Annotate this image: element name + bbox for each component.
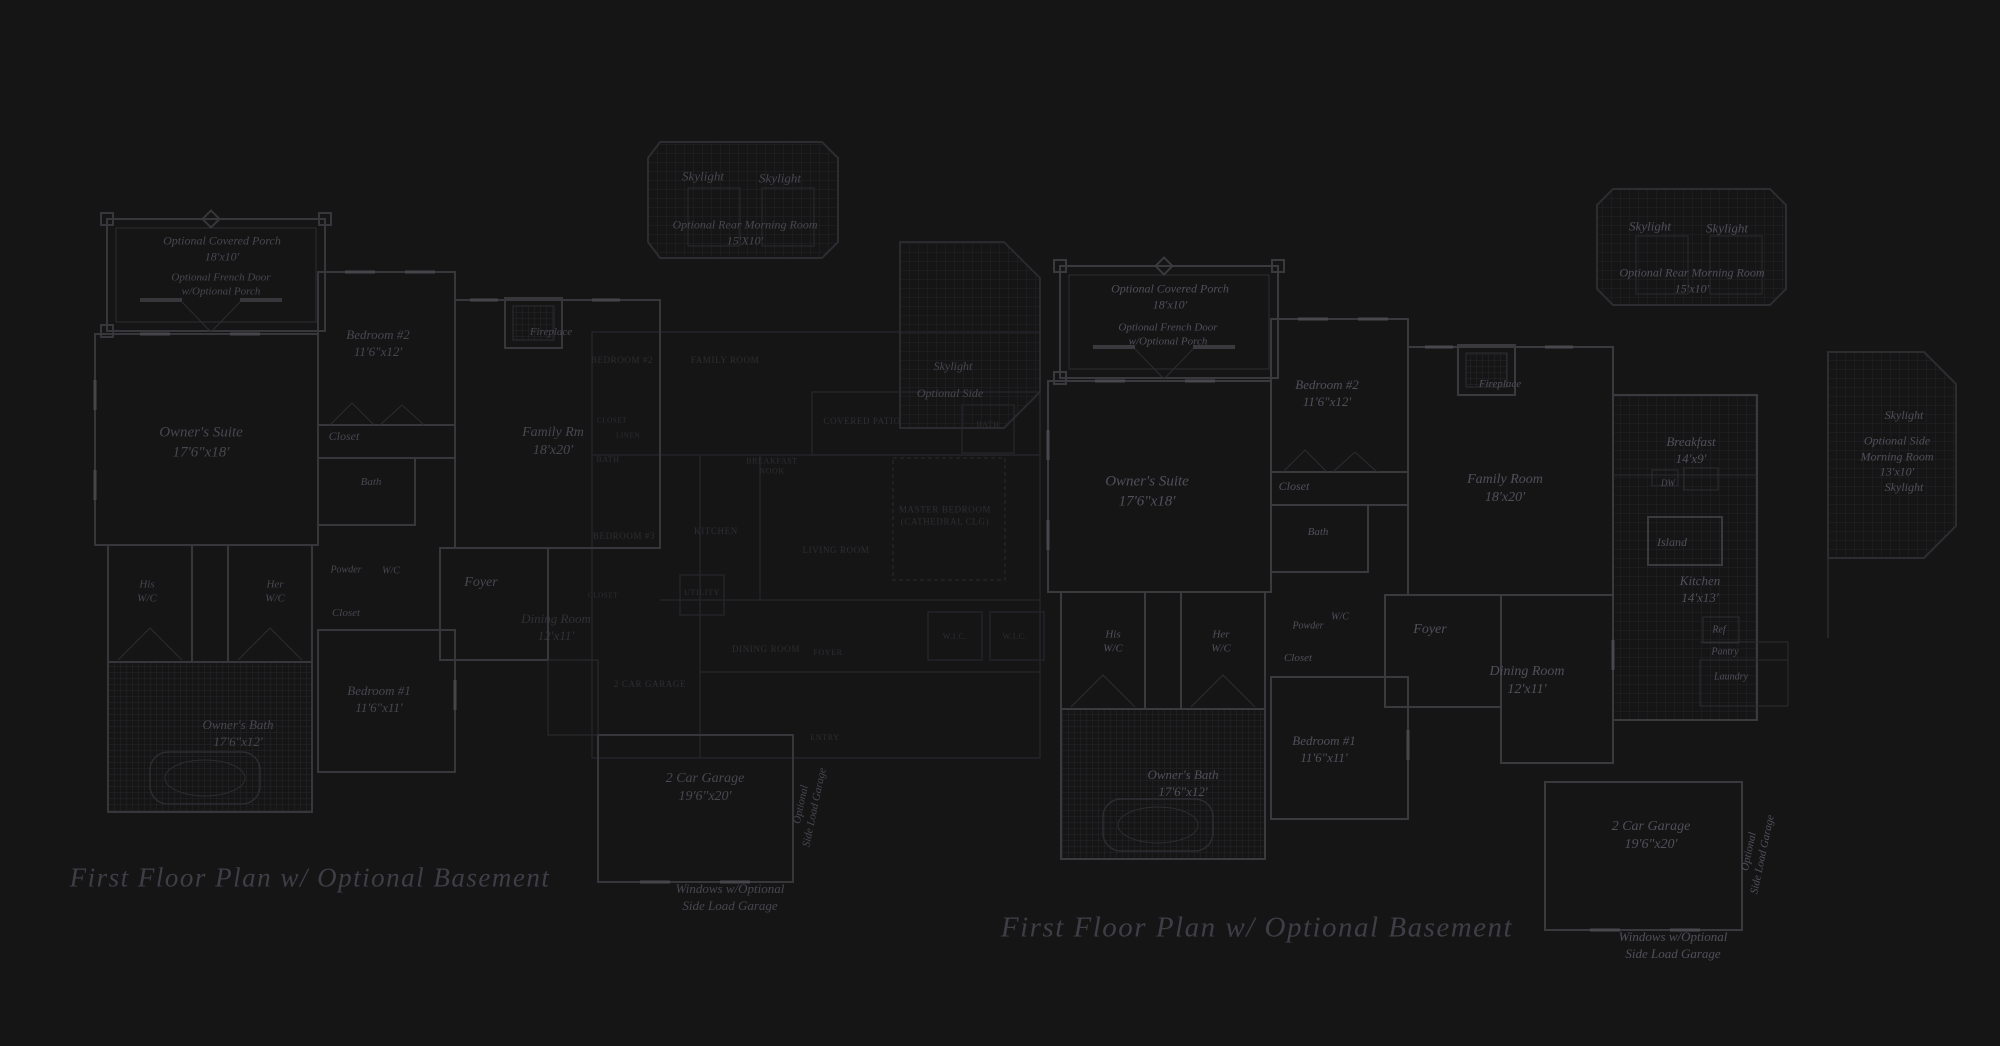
right-plan-caption: First Floor Plan w/ Optional Basement <box>1001 912 1513 945</box>
left-plan-caption: First Floor Plan w/ Optional Basement <box>70 863 551 894</box>
left-plan-walls <box>95 142 1040 882</box>
right-plan-walls <box>1048 189 1956 930</box>
floorplan-page: BEDROOM #2FAMILY ROOMCLOSETLINENBATHBREA… <box>0 0 2000 1046</box>
